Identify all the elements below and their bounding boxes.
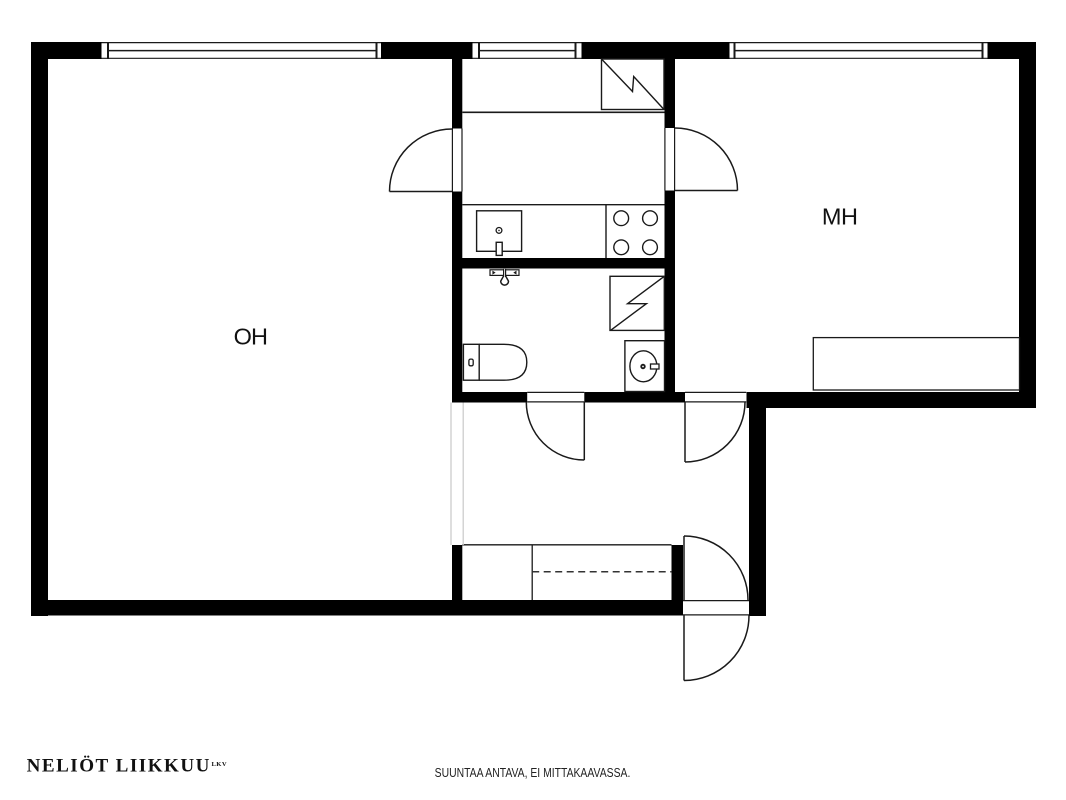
svg-text:LKV: LKV	[212, 761, 228, 768]
svg-text:NELIÖT LIIKKUU: NELIÖT LIIKKUU	[27, 756, 211, 777]
svg-text:SUUNTAA ANTAVA, EI MITTAKAAVAS: SUUNTAA ANTAVA, EI MITTAKAAVASSA.	[435, 765, 631, 780]
svg-text:MH: MH	[822, 203, 858, 229]
svg-text:OH: OH	[234, 323, 268, 349]
